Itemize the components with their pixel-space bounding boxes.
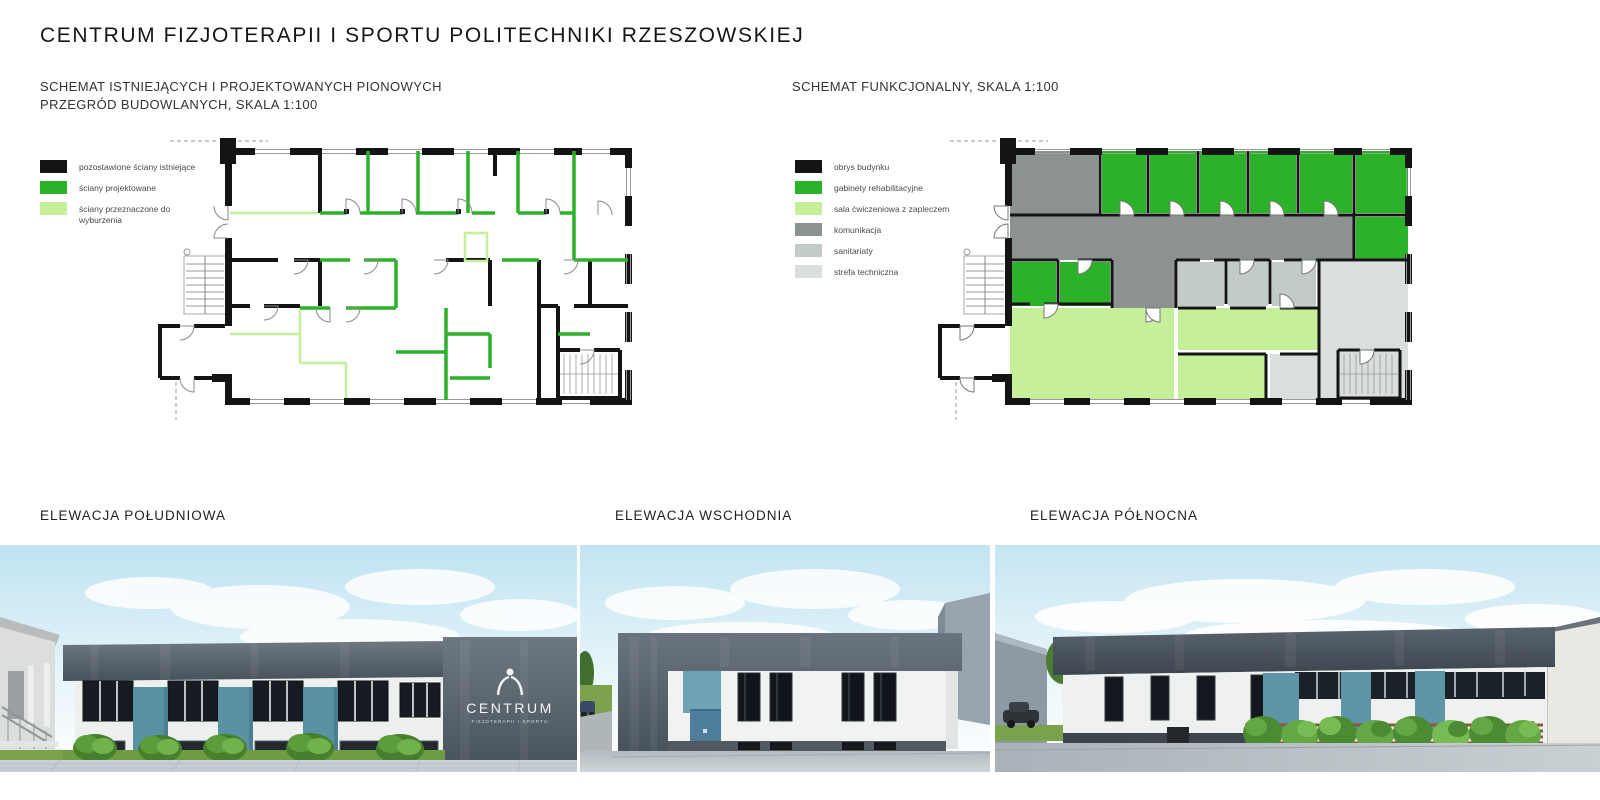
functional-scheme-heading: SCHEMAT FUNKCJONALNY, SKALA 1:100 xyxy=(792,78,1059,96)
legend-swatch-circulation xyxy=(795,223,822,236)
page-title: CENTRUM FIZJOTERAPII I SPORTU POLITECHNI… xyxy=(40,24,804,48)
walls-scheme-heading-line1: SCHEMAT ISTNIEJĄCYCH I PROJEKTOWANYCH PI… xyxy=(40,78,442,96)
legend-swatch-sanitary xyxy=(795,244,822,257)
legend-swatch-demolition-walls xyxy=(40,202,67,215)
north-elevation-render xyxy=(995,545,1600,772)
walls-scheme-heading-line2: PRZEGRÓD BUDOWLANYCH, SKALA 1:100 xyxy=(40,96,442,114)
legend-swatch-designed-walls xyxy=(40,181,67,194)
walls-scheme-floor-plan xyxy=(150,138,650,428)
south-elevation-label: ELEWACJA POŁUDNIOWA xyxy=(40,508,226,523)
south-elevation-render: CENTRUM FIZJOTERAPII I SPORTU xyxy=(0,545,577,772)
legend-swatch-outline xyxy=(795,160,822,173)
east-elevation-label: ELEWACJA WSCHODNIA xyxy=(615,508,792,523)
legend-swatch-technical xyxy=(795,265,822,278)
walls-scheme-heading: SCHEMAT ISTNIEJĄCYCH I PROJEKTOWANYCH PI… xyxy=(40,78,442,113)
building-logo-name: CENTRUM xyxy=(466,700,554,716)
legend-swatch-exercise-room xyxy=(795,202,822,215)
building-logo-subtitle: FIZJOTERAPII I SPORTU xyxy=(472,719,549,725)
north-elevation-label: ELEWACJA PÓŁNOCNA xyxy=(1030,508,1198,523)
functional-scheme-floor-plan xyxy=(930,138,1430,428)
east-elevation-render xyxy=(580,545,990,772)
legend-swatch-rehab-rooms xyxy=(795,181,822,194)
legend-swatch-existing-walls xyxy=(40,160,67,173)
